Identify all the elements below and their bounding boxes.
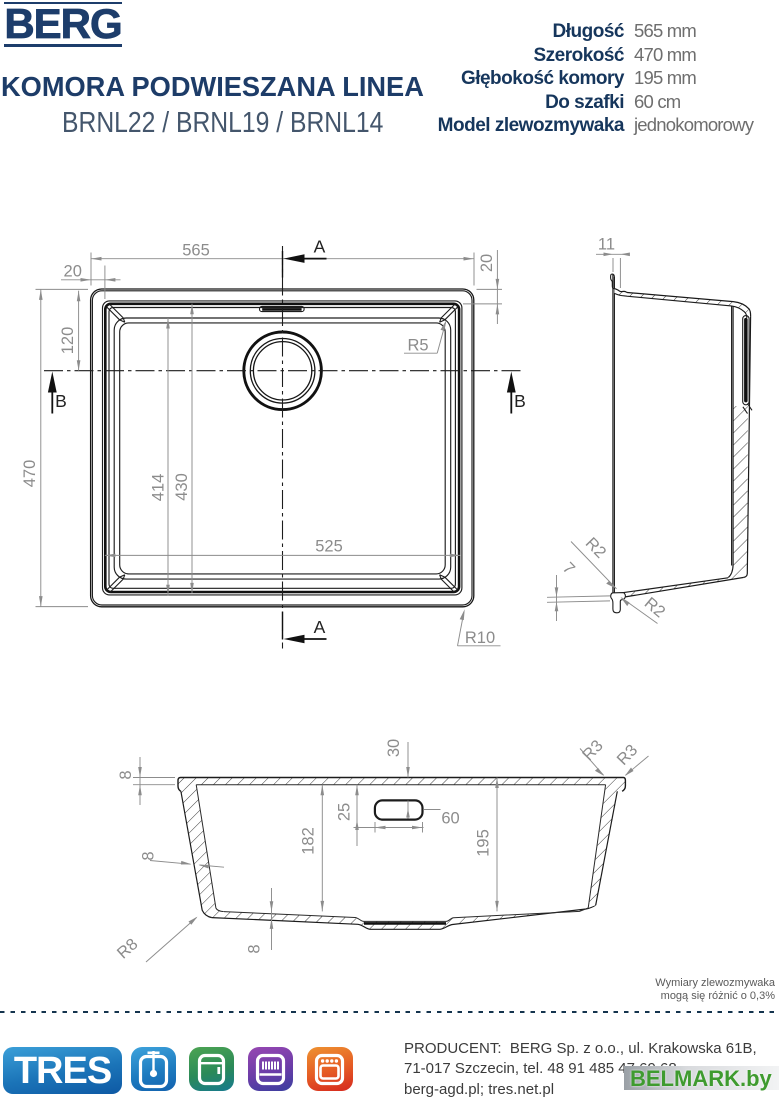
svg-text:565: 565 (182, 241, 210, 259)
svg-text:A: A (314, 237, 326, 257)
svg-text:195: 195 (475, 829, 493, 857)
svg-text:R10: R10 (465, 629, 495, 647)
svg-text:30: 30 (385, 739, 403, 757)
svg-text:R5: R5 (407, 337, 428, 355)
svg-text:R8: R8 (114, 935, 142, 962)
svg-text:R3: R3 (579, 737, 607, 765)
svg-text:A: A (314, 617, 326, 637)
svg-text:182: 182 (300, 827, 318, 855)
svg-text:20: 20 (478, 254, 496, 272)
svg-text:11: 11 (598, 236, 615, 254)
svg-text:8: 8 (117, 770, 135, 779)
svg-text:R3: R3 (614, 741, 642, 769)
svg-text:25: 25 (336, 803, 354, 821)
svg-text:430: 430 (173, 473, 191, 501)
svg-text:414: 414 (150, 474, 168, 502)
svg-text:120: 120 (59, 327, 77, 355)
svg-text:B: B (514, 391, 526, 411)
svg-text:20: 20 (64, 262, 82, 280)
svg-text:R2: R2 (641, 594, 669, 621)
svg-text:525: 525 (315, 538, 343, 556)
svg-text:B: B (55, 391, 67, 411)
svg-text:60: 60 (441, 810, 459, 828)
svg-text:8: 8 (140, 851, 158, 860)
svg-text:8: 8 (246, 944, 264, 953)
svg-text:R2: R2 (582, 534, 610, 562)
svg-text:470: 470 (21, 460, 39, 488)
svg-text:7: 7 (559, 559, 578, 578)
